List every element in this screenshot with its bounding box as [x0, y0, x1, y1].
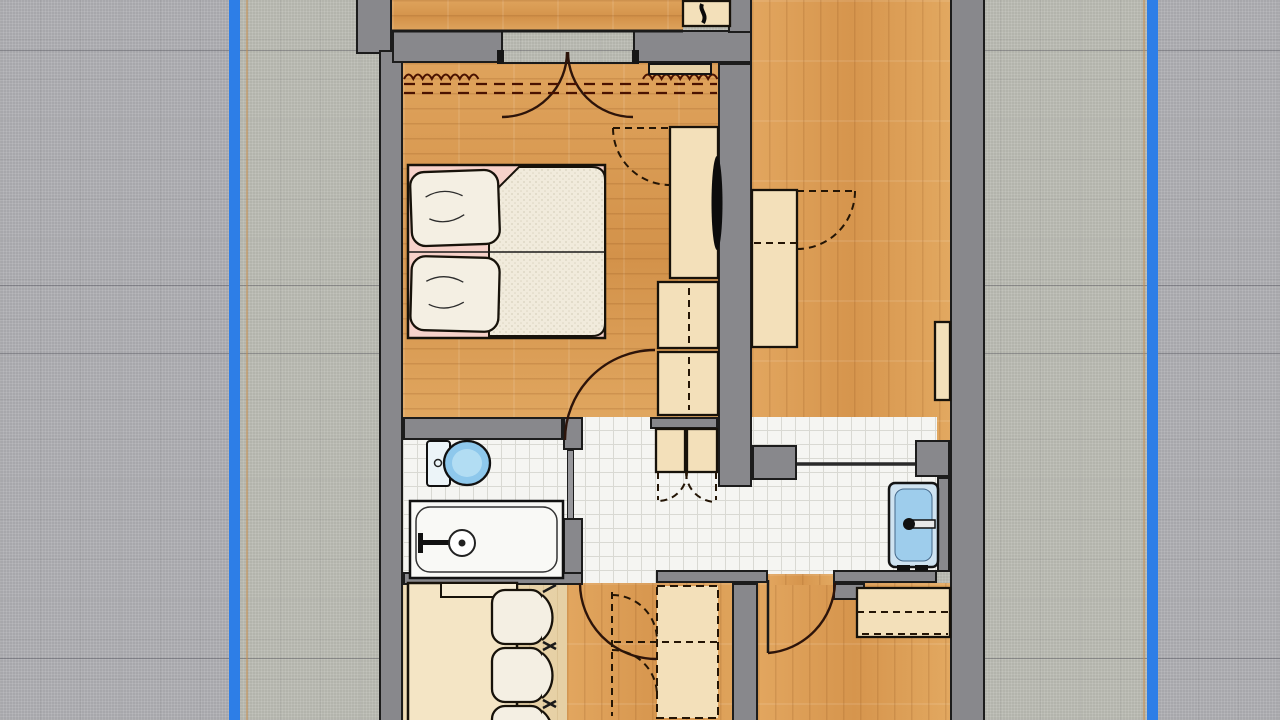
- pillow: [410, 169, 501, 246]
- bathtub-spout: [423, 540, 451, 545]
- closet-door-right: [687, 429, 717, 472]
- planter-box: [683, 1, 730, 26]
- washbasin-foot: [897, 565, 910, 571]
- entry-wardrobe: [657, 586, 718, 718]
- washbasin-foot: [915, 565, 928, 571]
- closet-swing-right: [686, 472, 716, 502]
- plan-linework: [0, 0, 1280, 720]
- chair: [492, 585, 556, 649]
- study-swing-arc: [797, 191, 855, 249]
- bedroom-door-swing: [565, 350, 655, 440]
- se-door-swing: [768, 583, 835, 653]
- tv-panel: [712, 156, 723, 250]
- desk-cabinet: [752, 190, 797, 347]
- door-jamb-left: [497, 50, 504, 64]
- toilet-bowl-inner: [452, 449, 482, 477]
- chair: [492, 643, 556, 707]
- washbasin-handle: [913, 520, 935, 528]
- bathtub: [410, 501, 563, 578]
- bathtub-tap: [418, 533, 423, 553]
- closet-door-left: [656, 429, 685, 472]
- pillow: [410, 256, 500, 332]
- window-sill: [649, 64, 711, 74]
- wall-shelf: [935, 322, 950, 400]
- bathtub-drain-dot: [459, 540, 466, 547]
- washbasin-faucet: [903, 518, 915, 530]
- closet-swing-left: [658, 472, 687, 501]
- entry-wardrobe-swing-top: [612, 595, 657, 640]
- floor-plan-canvas: [0, 0, 1280, 720]
- wardrobe-swing-arc: [613, 128, 670, 185]
- curtain-scallop-right: [643, 75, 717, 80]
- door-jamb-right: [632, 50, 639, 64]
- curtain-scallop-left: [404, 75, 478, 80]
- wardrobe: [670, 127, 718, 278]
